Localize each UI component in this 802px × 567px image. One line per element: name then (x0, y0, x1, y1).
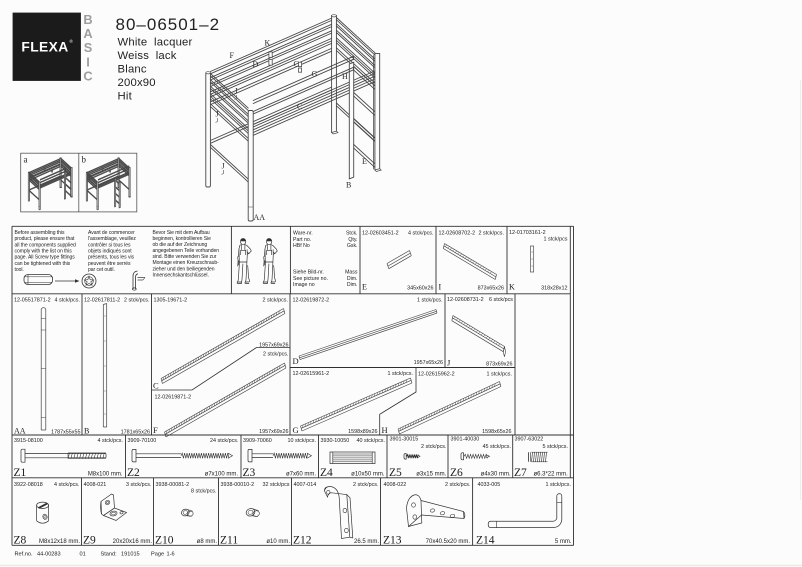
svg-text:4007-014: 4007-014 (294, 482, 317, 488)
svg-text:20x20x16 mm.: 20x20x16 mm. (113, 539, 153, 545)
svg-text:Bevor Sie mit dem Aufbau: Bevor Sie mit dem Aufbau (153, 230, 210, 236)
svg-text:C: C (294, 60, 299, 69)
svg-text:J: J (222, 162, 225, 171)
svg-text:ø7x100 mm.: ø7x100 mm. (205, 472, 239, 478)
svg-text:45 stck/pcs.: 45 stck/pcs. (483, 444, 511, 450)
svg-text:4008-021: 4008-021 (84, 482, 107, 488)
svg-text:40 stck/pcs.: 40 stck/pcs. (357, 438, 385, 444)
svg-text:S: S (84, 40, 93, 55)
svg-text:peuvent être serrés: peuvent être serrés (88, 261, 131, 267)
svg-text:1957x69x26: 1957x69x26 (259, 429, 288, 435)
svg-text:Z10: Z10 (155, 535, 174, 547)
svg-text:J: J (216, 110, 219, 119)
svg-text:Z9: Z9 (83, 535, 96, 547)
svg-text:Weiss lack: Weiss lack (118, 50, 177, 62)
svg-text:873x65x26: 873x65x26 (478, 286, 504, 292)
svg-text:12-02615962-2: 12-02615962-2 (418, 372, 455, 378)
svg-text:4 stck/pcs.: 4 stck/pcs. (98, 438, 123, 444)
svg-text:12-05517871-2: 12-05517871-2 (14, 298, 51, 304)
svg-text:3922-08018: 3922-08018 (14, 482, 43, 488)
svg-text:1598x65x26: 1598x65x26 (482, 429, 511, 435)
svg-text:3901-30015: 3901-30015 (390, 437, 419, 443)
svg-text:Avant de commencer: Avant de commencer (88, 230, 135, 236)
svg-text:ø10 mm.: ø10 mm. (266, 539, 290, 545)
svg-text:Ware-nr.: Ware-nr. (293, 231, 313, 237)
svg-text:Z8: Z8 (14, 535, 27, 547)
svg-text:12-02619872-2: 12-02619872-2 (293, 298, 330, 304)
svg-text:2 stck/pcs.: 2 stck/pcs. (124, 298, 149, 304)
svg-text:6 stck/pcs: 6 stck/pcs (489, 297, 513, 303)
svg-text:HBf No: HBf No (293, 243, 310, 249)
svg-text:C: C (83, 68, 92, 83)
svg-text:Z5: Z5 (389, 467, 402, 479)
svg-text:26.5 mm.: 26.5 mm. (354, 539, 379, 545)
svg-text:Page: Page (151, 552, 164, 558)
svg-text:70x40.5x20 mm.: 70x40.5x20 mm. (426, 539, 471, 545)
svg-text:1781x65x26: 1781x65x26 (121, 430, 150, 436)
svg-text:3938-00010-2: 3938-00010-2 (221, 482, 255, 488)
svg-text:A: A (83, 26, 92, 41)
svg-text:B: B (83, 12, 92, 27)
svg-text:comply with the list on this: comply with the list on this (15, 248, 73, 254)
svg-text:Gsk.: Gsk. (347, 243, 358, 249)
svg-text:Z1: Z1 (14, 467, 27, 479)
svg-text:32 stck/pcs: 32 stck/pcs (263, 482, 290, 488)
svg-text:3901-40030: 3901-40030 (451, 437, 480, 443)
svg-text:page. All Screw type fittings: page. All Screw type fittings (15, 255, 76, 261)
svg-text:12-02617811-2: 12-02617811-2 (84, 298, 120, 304)
svg-text:Dim.: Dim. (347, 282, 358, 288)
svg-text:2 stck/pcs.: 2 stck/pcs. (353, 482, 378, 488)
svg-text:1 stck/pcs.: 1 stck/pcs. (546, 482, 571, 488)
svg-text:1787x55x55: 1787x55x55 (51, 430, 80, 436)
svg-text:Before assembling this: Before assembling this (15, 230, 65, 236)
svg-text:80–06501–2: 80–06501–2 (116, 15, 221, 34)
svg-text:E: E (362, 283, 367, 292)
svg-text:ø7x60 mm.: ø7x60 mm. (286, 472, 316, 478)
svg-text:Z11: Z11 (220, 535, 238, 547)
svg-text:ø4x30 mm.: ø4x30 mm. (481, 472, 511, 478)
svg-text:2 stck/pcs.: 2 stck/pcs. (445, 482, 470, 488)
svg-text:24 stck/pcs.: 24 stck/pcs. (210, 438, 238, 444)
svg-text:12-02615961-2: 12-02615961-2 (293, 371, 330, 377)
svg-text:5 mm.: 5 mm. (555, 539, 572, 545)
svg-text:3915-08100: 3915-08100 (14, 438, 43, 444)
svg-text:3909-70100: 3909-70100 (128, 438, 157, 444)
svg-text:Z14: Z14 (476, 535, 495, 547)
svg-text:1-6: 1-6 (167, 552, 175, 558)
svg-text:4 stck/pcs.: 4 stck/pcs. (54, 482, 79, 488)
svg-text:1 stck/pcs: 1 stck/pcs (544, 237, 568, 243)
svg-text:318x28x12: 318x28x12 (541, 286, 567, 292)
svg-text:3938-00081-2: 3938-00081-2 (156, 482, 190, 488)
svg-text:3930-10050: 3930-10050 (321, 438, 350, 444)
svg-text:12-02608702-2: 12-02608702-2 (439, 230, 476, 236)
svg-text:G: G (293, 425, 299, 435)
svg-text:Z2: Z2 (127, 467, 140, 479)
svg-text:Z4: Z4 (320, 467, 333, 479)
svg-text:12-02608731-2: 12-02608731-2 (447, 297, 484, 303)
svg-text:I: I (439, 283, 442, 292)
svg-text:C: C (153, 381, 159, 391)
svg-text:b: b (82, 155, 87, 165)
svg-text:I: I (86, 54, 90, 69)
svg-text:10 stck/pcs.: 10 stck/pcs. (288, 438, 316, 444)
svg-text:Mass: Mass (345, 270, 358, 276)
svg-text:F: F (153, 425, 158, 435)
svg-text:2 stck/pcs.: 2 stck/pcs. (479, 230, 504, 236)
svg-text:C: C (297, 102, 302, 111)
svg-text:can be tightened with this: can be tightened with this (15, 261, 71, 267)
svg-text:3907-63022: 3907-63022 (515, 437, 544, 443)
svg-text:Z13: Z13 (383, 535, 402, 547)
svg-text:12-01703161-2: 12-01703161-2 (509, 230, 546, 236)
svg-text:4033-005: 4033-005 (478, 482, 501, 488)
svg-text:tool.: tool. (15, 267, 24, 273)
svg-text:Hit: Hit (118, 91, 133, 103)
svg-text:ø8 mm.: ø8 mm. (197, 539, 218, 545)
svg-text:200x90: 200x90 (118, 77, 156, 89)
svg-text:Siehe Bild-nr.: Siehe Bild-nr. (293, 270, 324, 276)
svg-text:3 stck/pcs.: 3 stck/pcs. (126, 482, 151, 488)
svg-text:ø10x50 mm.: ø10x50 mm. (351, 472, 385, 478)
svg-text:M8x12x18 mm.: M8x12x18 mm. (39, 539, 80, 545)
svg-text:12-02619871-2: 12-02619871-2 (155, 395, 192, 401)
svg-text:Montage einen Kreuzschraub-: Montage einen Kreuzschraub- (153, 260, 220, 266)
svg-text:3909-70060: 3909-70060 (243, 438, 272, 444)
svg-text:product, please ensure that: product, please ensure that (15, 236, 75, 242)
svg-text:Stck.: Stck. (346, 231, 358, 237)
svg-text:Blanc: Blanc (118, 64, 147, 76)
svg-text:873x69x26: 873x69x26 (486, 362, 512, 368)
svg-text:FLEXA: FLEXA (21, 40, 68, 55)
svg-text:présents, tous les vis: présents, tous les vis (88, 255, 135, 261)
svg-text:Z7: Z7 (514, 467, 527, 479)
svg-text:2 stck/pcs.: 2 stck/pcs. (263, 352, 288, 358)
svg-text:1 stck/pcs.: 1 stck/pcs. (417, 298, 442, 304)
svg-text:12-02603451-2: 12-02603451-2 (362, 230, 399, 236)
svg-text:G: G (312, 70, 318, 79)
svg-text:ob die auf der Zeichnung: ob die auf der Zeichnung (153, 242, 208, 248)
svg-text:5 stck/pcs.: 5 stck/pcs. (543, 444, 568, 450)
svg-text:2 stck/pcs.: 2 stck/pcs. (421, 444, 446, 450)
svg-text:4 stck/pcs.: 4 stck/pcs. (55, 298, 80, 304)
svg-text:1957x69x26: 1957x69x26 (259, 343, 288, 349)
svg-text:ø6.3*22 mm.: ø6.3*22 mm. (533, 472, 568, 478)
svg-text:345x60x26: 345x60x26 (407, 286, 433, 292)
svg-text:H: H (382, 425, 388, 435)
svg-text:1957x65x26: 1957x65x26 (414, 360, 443, 366)
svg-text:J: J (235, 87, 238, 96)
svg-text:Part no.: Part no. (293, 237, 311, 243)
svg-text:contrôler si tous les: contrôler si tous les (88, 242, 131, 248)
svg-text:2 stck/pcs.: 2 stck/pcs. (263, 298, 288, 304)
svg-text:E: E (362, 157, 367, 166)
svg-text:a: a (24, 155, 28, 165)
svg-text:44-00283: 44-00283 (37, 552, 61, 558)
svg-text:par cet outil.: par cet outil. (88, 267, 115, 273)
svg-text:1598x89x26: 1598x89x26 (348, 429, 377, 435)
svg-text:l'assemblage, veuillez: l'assemblage, veuillez (88, 236, 136, 242)
svg-text:F: F (230, 51, 235, 60)
svg-text:White lacquer: White lacquer (118, 37, 193, 49)
svg-text:ø3x15 mm.: ø3x15 mm. (416, 472, 446, 478)
svg-text:1305-19671-2: 1305-19671-2 (154, 298, 188, 304)
svg-text:Z6: Z6 (450, 467, 463, 479)
svg-text:Dim.: Dim. (347, 276, 358, 282)
svg-text:D: D (253, 60, 259, 69)
svg-text:191015: 191015 (121, 552, 140, 558)
svg-text:K: K (509, 283, 515, 292)
svg-text:AA: AA (254, 213, 266, 222)
svg-text:objets indiqués sont: objets indiqués sont (88, 248, 132, 254)
svg-text:1 stck/pcs.: 1 stck/pcs. (487, 372, 512, 378)
svg-text:4008-022: 4008-022 (384, 482, 407, 488)
svg-text:K: K (265, 39, 271, 48)
svg-text:Qty.: Qty. (348, 237, 357, 243)
svg-text:AA: AA (14, 427, 26, 436)
svg-text:all the components supplied: all the components supplied (15, 242, 76, 248)
svg-text:zieher und den beiliegenden: zieher und den beiliegenden (153, 266, 215, 272)
svg-text:Ref.no.: Ref.no. (15, 552, 33, 558)
svg-text:M8x100 mm.: M8x100 mm. (88, 472, 123, 478)
svg-text:4 stck/pcs.: 4 stck/pcs. (408, 230, 433, 236)
svg-text:Stand:: Stand: (101, 552, 118, 558)
svg-text:Innensechskantschlüssel.: Innensechskantschlüssel. (153, 272, 209, 278)
svg-text:D: D (293, 356, 299, 366)
svg-text:Image no: Image no (293, 282, 315, 288)
svg-text:01: 01 (80, 552, 86, 558)
svg-text:H: H (342, 72, 348, 81)
svg-text:B: B (84, 427, 89, 436)
svg-text:Z3: Z3 (243, 467, 256, 479)
svg-text:Z12: Z12 (293, 535, 312, 547)
svg-text:B: B (346, 181, 351, 190)
svg-text:1 stck/pcs.: 1 stck/pcs. (388, 371, 413, 377)
svg-text:See picture no.: See picture no. (293, 276, 328, 282)
svg-text:8 stck/pcs.: 8 stck/pcs. (191, 489, 216, 495)
